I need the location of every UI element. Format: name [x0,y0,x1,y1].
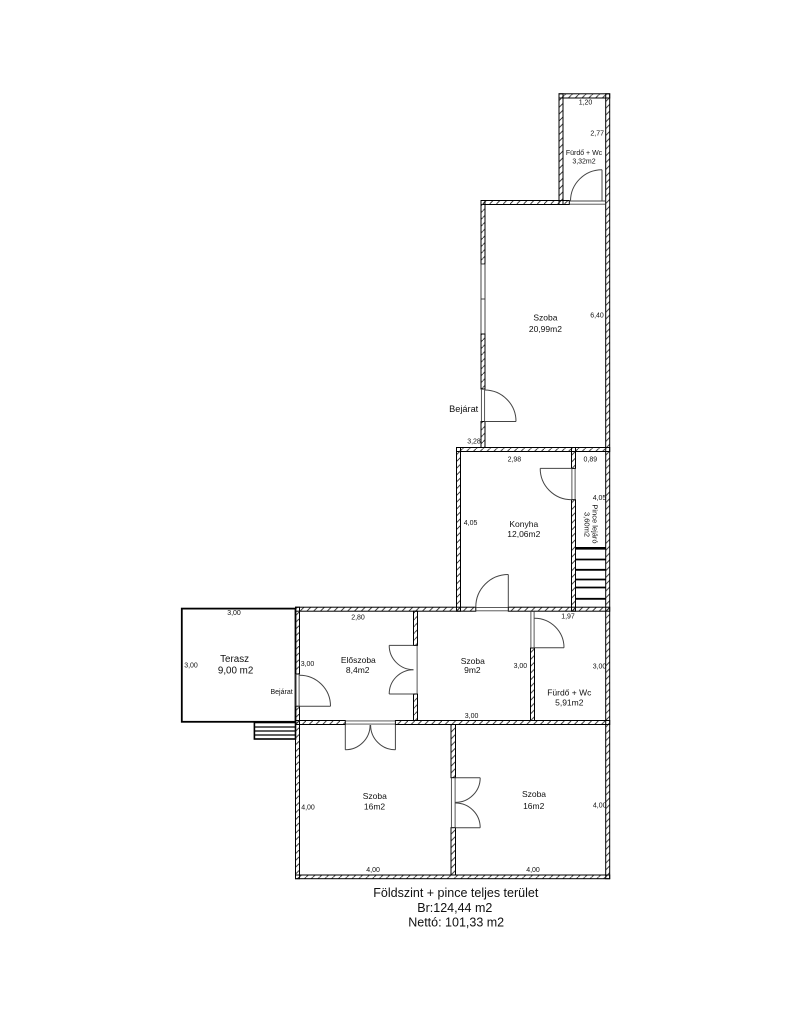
svg-text:4,05: 4,05 [464,520,478,527]
svg-text:Előszoba: Előszoba [341,655,376,665]
svg-text:4,00: 4,00 [526,867,540,874]
svg-text:Br:124,44 m2: Br:124,44 m2 [417,901,492,915]
svg-text:0,89: 0,89 [583,456,597,463]
svg-text:Terasz: Terasz [220,654,249,665]
svg-text:Szoba: Szoba [533,312,557,322]
svg-text:Földszint + pince teljes terül: Földszint + pince teljes terület [373,886,539,900]
svg-text:1,97: 1,97 [561,614,575,621]
svg-text:8,4m2: 8,4m2 [346,665,370,675]
svg-text:Konyha: Konyha [509,519,538,529]
svg-text:4,00: 4,00 [366,867,380,874]
svg-text:3,00: 3,00 [227,610,241,617]
svg-text:2,80: 2,80 [351,615,365,622]
svg-text:Bejárat: Bejárat [271,689,293,696]
svg-text:12,06m2: 12,06m2 [507,529,540,539]
svg-text:Szoba: Szoba [363,791,387,801]
svg-text:Fürdő + Wc: Fürdő + Wc [547,688,592,698]
svg-text:6,40: 6,40 [590,312,604,319]
svg-text:3,00: 3,00 [184,662,198,669]
svg-text:3,00: 3,00 [514,663,528,670]
svg-text:3,00: 3,00 [301,661,315,668]
svg-text:2,98: 2,98 [508,456,522,463]
svg-text:16m2: 16m2 [364,802,386,812]
svg-text:3,32m2: 3,32m2 [572,159,595,166]
svg-text:9m2: 9m2 [464,665,481,675]
svg-text:4,00: 4,00 [593,803,607,810]
svg-text:Bejárat: Bejárat [449,404,479,414]
svg-text:4,00: 4,00 [301,805,315,812]
svg-text:2,77: 2,77 [590,131,604,138]
svg-text:1,20: 1,20 [579,100,593,107]
svg-text:16m2: 16m2 [523,801,545,811]
svg-text:4,05: 4,05 [593,495,607,502]
svg-text:Szoba: Szoba [522,789,546,799]
svg-text:20,99m2: 20,99m2 [529,324,562,334]
svg-text:Fürdő + Wc: Fürdő + Wc [566,150,603,157]
svg-text:3,00: 3,00 [465,713,479,720]
svg-text:Nettó: 101,33 m2: Nettó: 101,33 m2 [408,916,504,930]
svg-text:3,60m2: 3,60m2 [583,512,592,537]
svg-text:3,00: 3,00 [593,663,607,670]
svg-text:3,28: 3,28 [467,438,481,445]
svg-text:5,91m2: 5,91m2 [555,698,584,708]
svg-text:9,00 m2: 9,00 m2 [218,666,253,677]
